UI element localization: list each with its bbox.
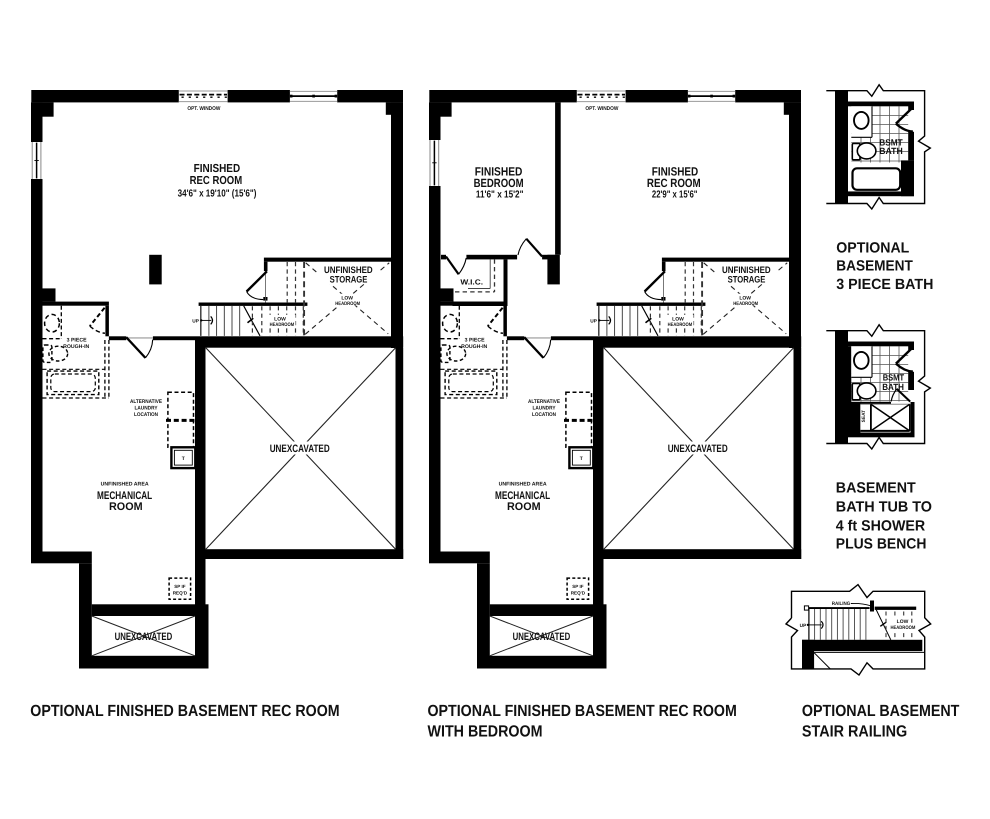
svg-text:OPTIONAL FINISHED BASEMENT REC: OPTIONAL FINISHED BASEMENT REC ROOM [30, 702, 339, 720]
svg-text:RAILING: RAILING [832, 601, 851, 607]
svg-text:4 ft SHOWER: 4 ft SHOWER [836, 518, 926, 534]
svg-text:BATH: BATH [882, 382, 904, 392]
svg-text:UP: UP [800, 623, 807, 629]
svg-text:22'9" x 15'6": 22'9" x 15'6" [652, 189, 698, 200]
svg-text:LOW: LOW [897, 619, 909, 625]
svg-text:11'6" x 15'2": 11'6" x 15'2" [476, 189, 524, 200]
svg-text:34'6" x 19'10" (15'6"): 34'6" x 19'10" (15'6") [178, 188, 257, 199]
svg-text:WITH BEDROOM: WITH BEDROOM [428, 722, 543, 740]
svg-text:PLUS BENCH: PLUS BENCH [836, 536, 927, 552]
svg-text:HEADROOM: HEADROOM [890, 625, 915, 631]
svg-text:BATH TUB TO: BATH TUB TO [836, 499, 932, 515]
svg-text:BEDROOM: BEDROOM [474, 176, 524, 190]
svg-text:BASEMENT: BASEMENT [836, 259, 913, 275]
svg-text:OPTIONAL BASEMENT: OPTIONAL BASEMENT [802, 702, 960, 720]
svg-text:3 PIECE BATH: 3 PIECE BATH [836, 277, 933, 293]
svg-text:FINISHED: FINISHED [194, 162, 241, 175]
svg-text:BATH: BATH [879, 146, 903, 156]
svg-text:W.I.C.: W.I.C. [460, 278, 483, 287]
svg-text:REC ROOM: REC ROOM [647, 176, 701, 190]
svg-text:OPTIONAL FINISHED BASEMENT REC: OPTIONAL FINISHED BASEMENT REC ROOM [428, 702, 737, 720]
svg-text:SEAT: SEAT [861, 410, 867, 423]
svg-text:BASEMENT: BASEMENT [836, 481, 916, 497]
svg-text:STAIR RAILING: STAIR RAILING [802, 723, 907, 741]
svg-text:REC ROOM: REC ROOM [190, 174, 243, 187]
svg-text:OPTIONAL: OPTIONAL [836, 241, 909, 257]
